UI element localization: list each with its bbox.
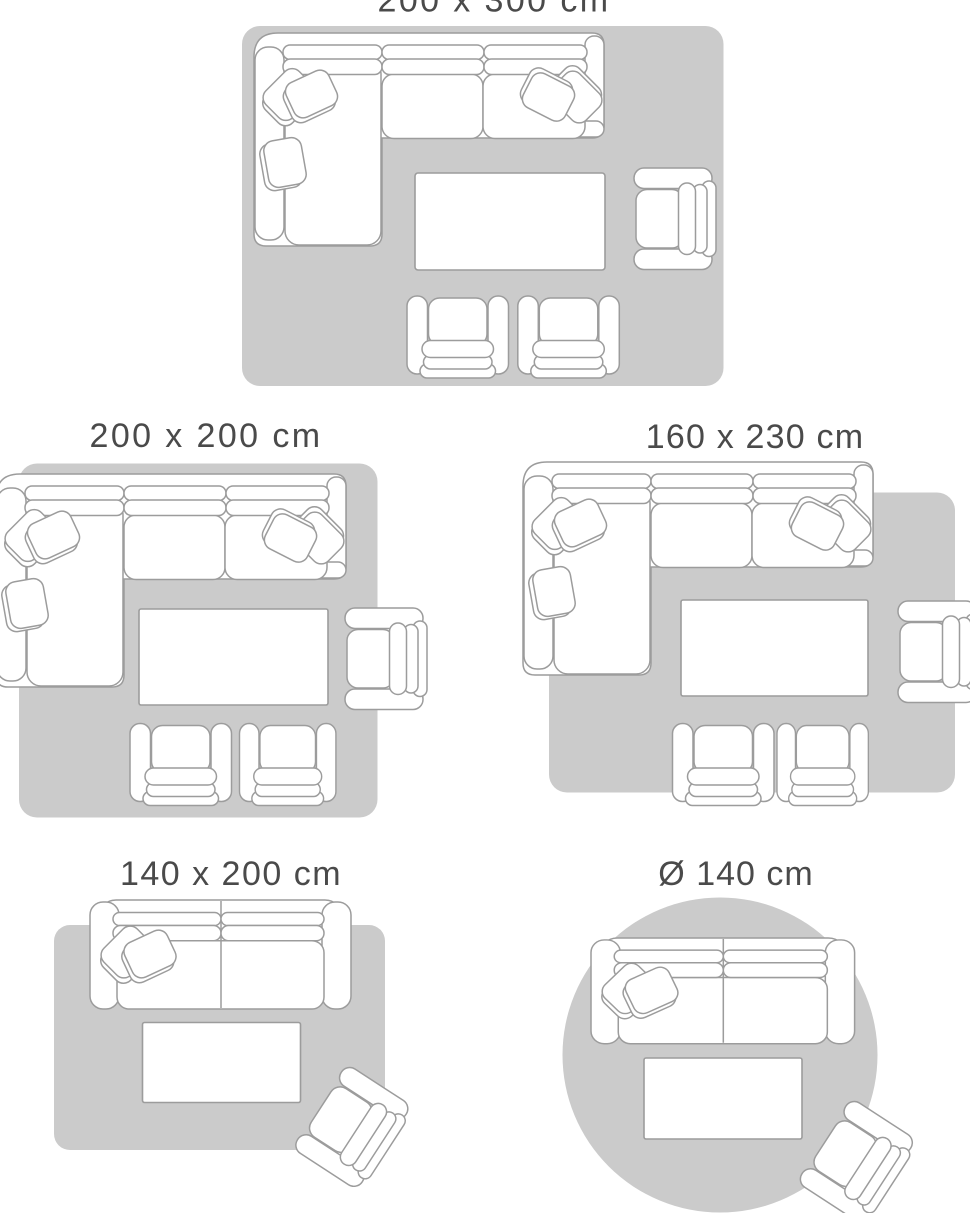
svg-text:200 x 200 cm: 200 x 200 cm — [90, 417, 323, 455]
svg-text:200 x 300 cm: 200 x 300 cm — [378, 0, 611, 20]
svg-text:160 x 230 cm: 160 x 230 cm — [646, 418, 865, 456]
svg-text:Ø 140 cm: Ø 140 cm — [658, 855, 813, 893]
svg-text:140 x 200 cm: 140 x 200 cm — [120, 855, 342, 893]
